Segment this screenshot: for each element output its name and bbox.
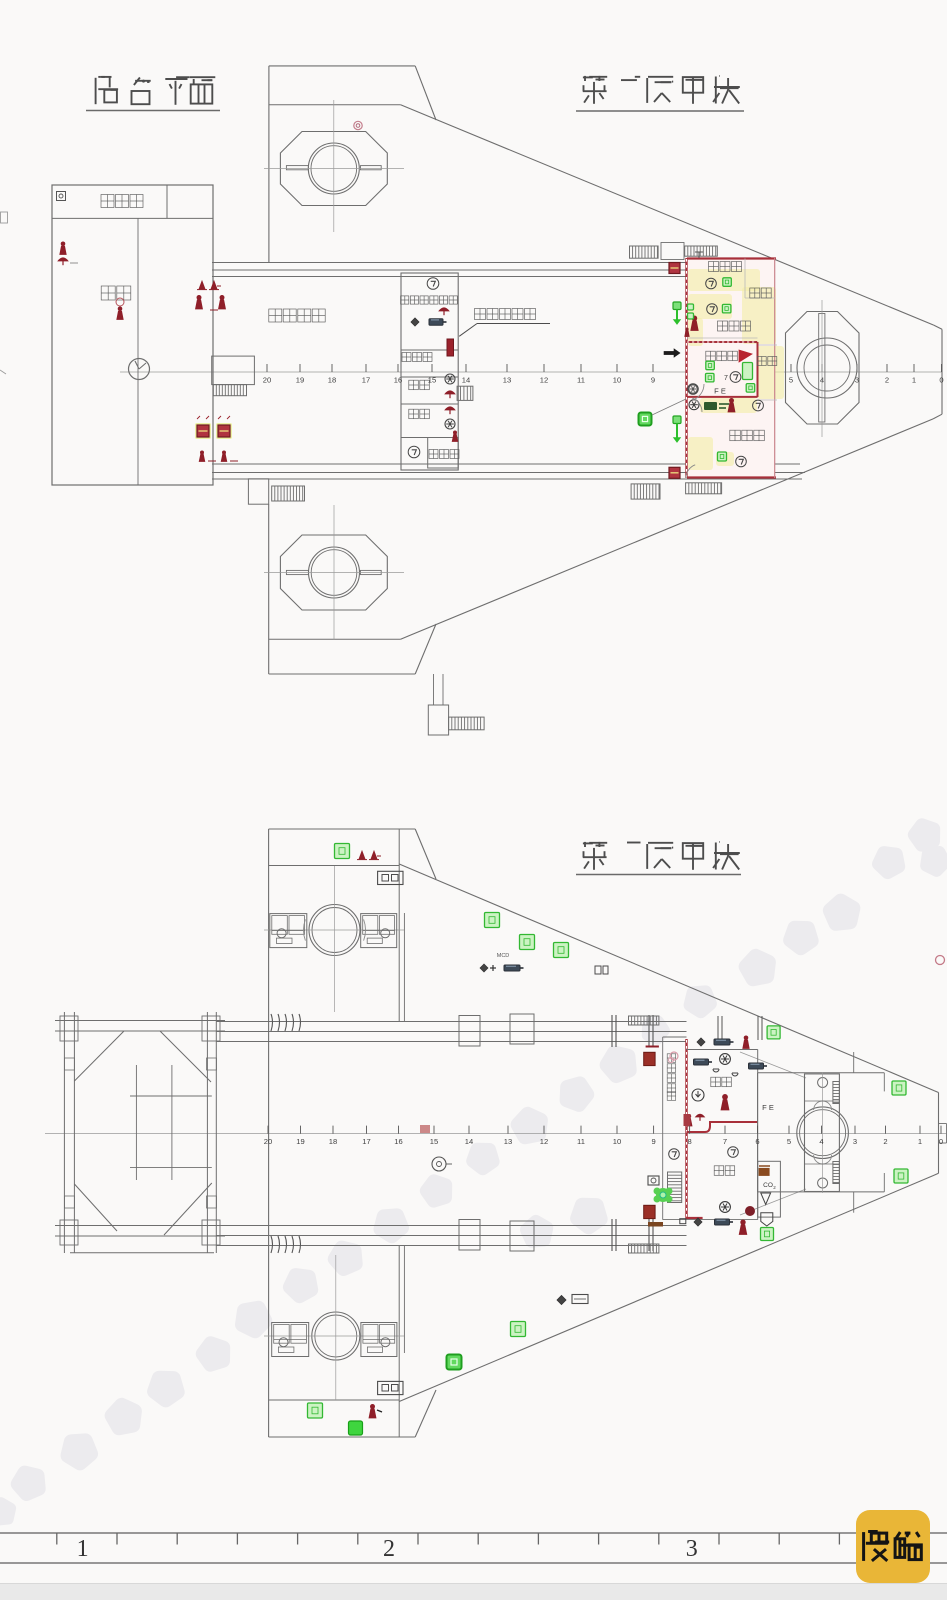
svg-text:14: 14	[462, 376, 470, 385]
svg-text:15: 15	[428, 376, 436, 385]
svg-text:9: 9	[651, 376, 655, 385]
svg-text:13: 13	[503, 376, 511, 385]
svg-text:15: 15	[430, 1137, 438, 1146]
svg-text:0: 0	[939, 376, 943, 385]
svg-text:12: 12	[540, 376, 548, 385]
svg-text:12: 12	[540, 1137, 548, 1146]
svg-text:3: 3	[686, 1536, 698, 1562]
svg-text:18: 18	[328, 376, 336, 385]
svg-text:1: 1	[912, 376, 916, 385]
svg-text:10: 10	[613, 376, 621, 385]
svg-text:11: 11	[577, 376, 585, 385]
svg-text:16: 16	[394, 376, 402, 385]
svg-text:F E: F E	[762, 1103, 774, 1112]
svg-text:20: 20	[264, 1137, 272, 1146]
svg-text:16: 16	[394, 1137, 402, 1146]
svg-text:5: 5	[787, 1137, 791, 1146]
svg-text:6: 6	[755, 1137, 759, 1146]
svg-text:0: 0	[939, 1137, 943, 1146]
svg-text:17: 17	[362, 376, 370, 385]
svg-text:17: 17	[362, 1137, 370, 1146]
svg-text:10: 10	[613, 1137, 621, 1146]
svg-text:14: 14	[465, 1137, 473, 1146]
svg-text:20: 20	[263, 376, 271, 385]
svg-text:4: 4	[819, 1137, 823, 1146]
svg-text:7: 7	[723, 1137, 727, 1146]
svg-text:11: 11	[577, 1137, 585, 1146]
svg-text:1: 1	[77, 1536, 89, 1562]
svg-text:9: 9	[651, 1137, 655, 1146]
svg-text:2: 2	[885, 376, 889, 385]
svg-text:2: 2	[383, 1536, 395, 1562]
svg-text:CO: CO	[763, 1182, 773, 1189]
svg-text:13: 13	[504, 1137, 512, 1146]
svg-text:F E: F E	[714, 387, 726, 396]
svg-text:8: 8	[687, 1137, 691, 1146]
svg-text:MCD: MCD	[497, 953, 510, 959]
svg-text:7: 7	[724, 375, 728, 382]
svg-text:2: 2	[883, 1137, 887, 1146]
svg-text:19: 19	[296, 1137, 304, 1146]
svg-text:19: 19	[296, 376, 304, 385]
svg-text:3: 3	[853, 1137, 857, 1146]
svg-text:5: 5	[789, 376, 793, 385]
svg-text:1: 1	[918, 1137, 922, 1146]
svg-text:18: 18	[329, 1137, 337, 1146]
